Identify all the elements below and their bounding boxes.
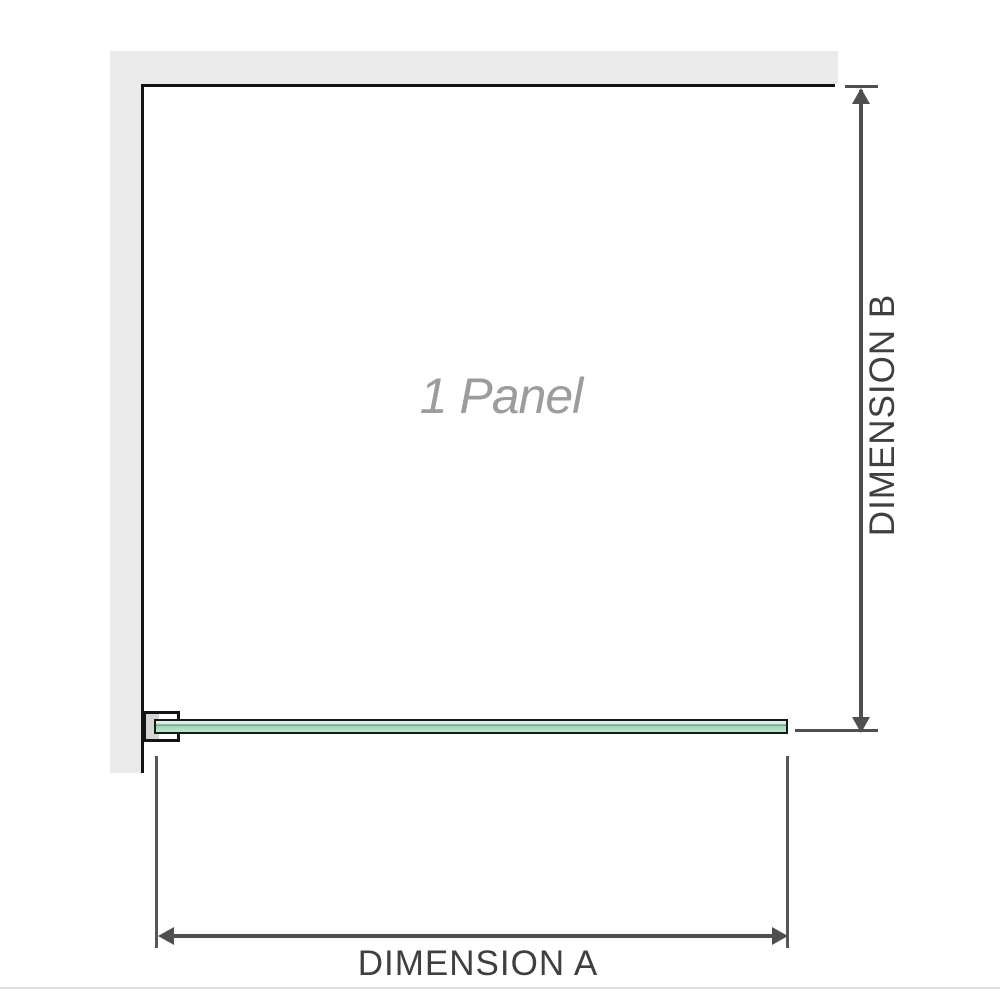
bottom-rule <box>0 987 1000 989</box>
dimension-a-line <box>162 934 776 938</box>
panel-label: 1 Panel <box>420 367 583 425</box>
arrow-up-icon <box>852 88 870 104</box>
wall-left-strip <box>110 51 141 773</box>
arrow-down-icon <box>852 717 870 733</box>
panel-dimension-diagram: 1 Panel DIMENSION B DIMENSION A <box>0 0 1000 1000</box>
dimension-b-label: DIMENSION B <box>863 294 903 536</box>
dimension-a-label: DIMENSION A <box>358 944 598 984</box>
arrow-left-icon <box>158 927 174 945</box>
wall-edge-line <box>141 84 144 773</box>
glass-panel <box>154 719 788 734</box>
arrow-right-icon <box>772 927 788 945</box>
panel-outline-top <box>141 84 835 87</box>
wall-top-strip <box>110 51 838 84</box>
dimension-a-right-extension <box>786 756 789 948</box>
dimension-a-left-extension <box>155 756 158 948</box>
